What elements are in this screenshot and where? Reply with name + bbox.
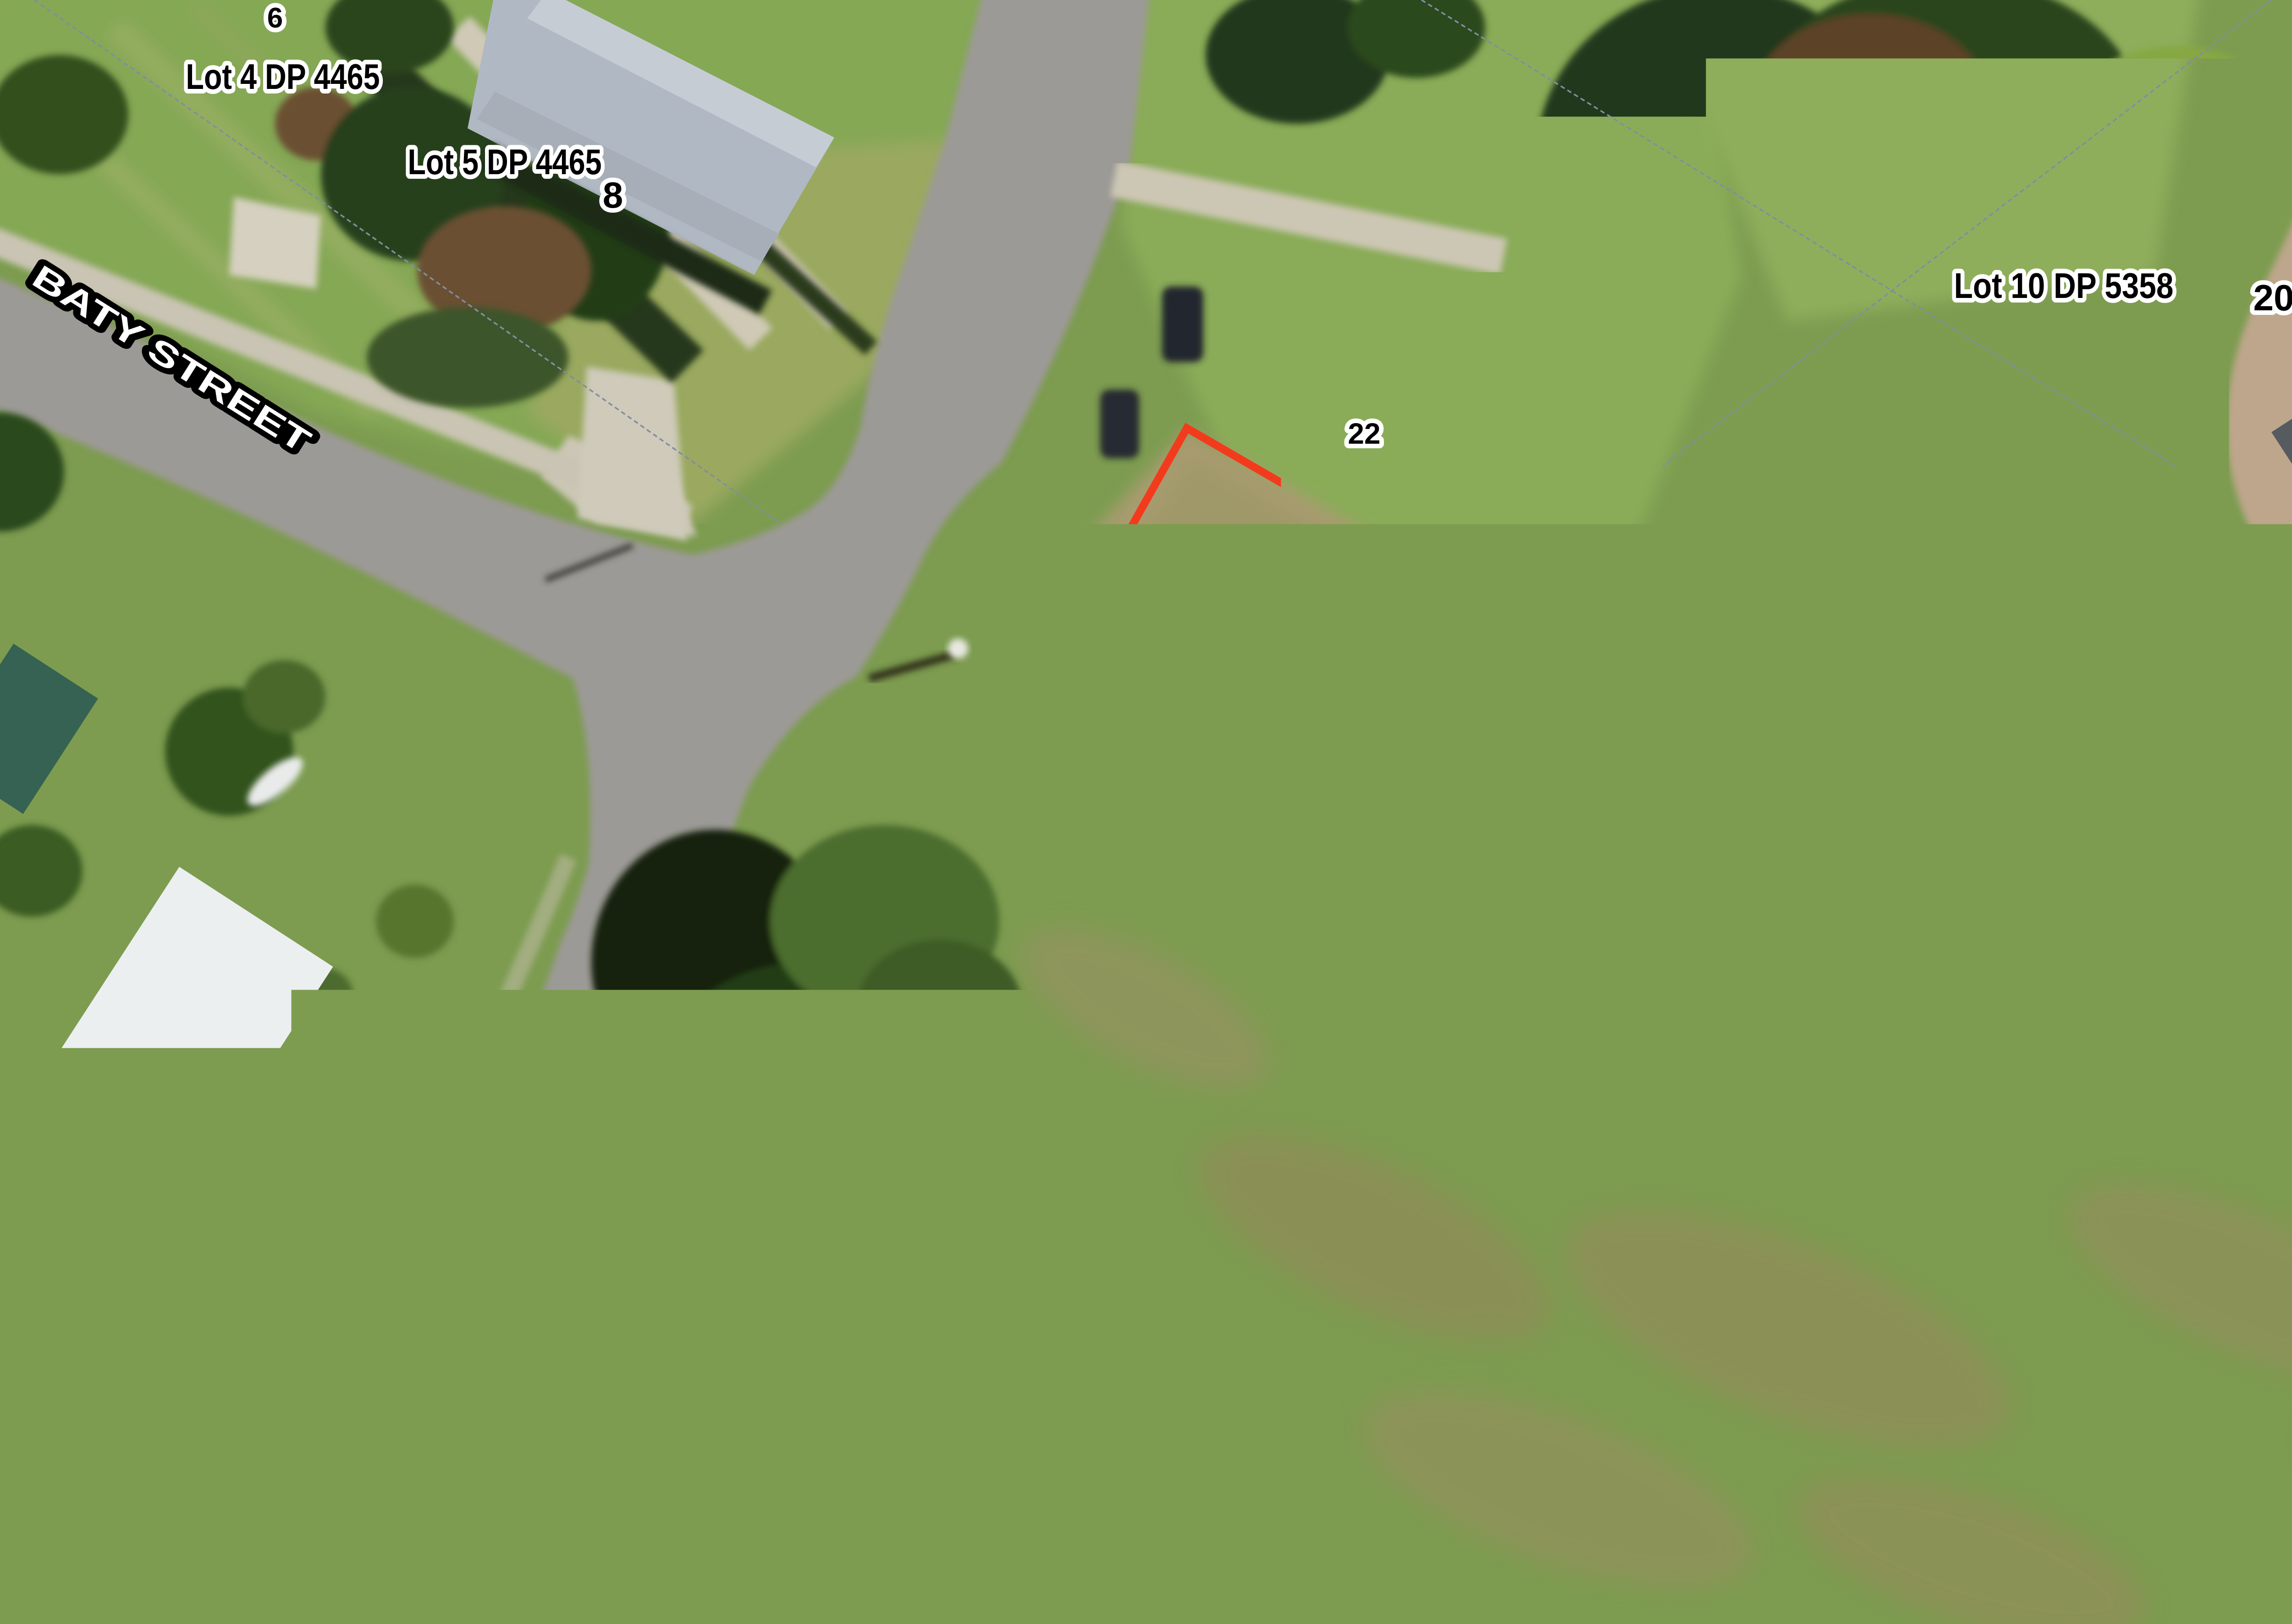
svg-text:Lot 10 DP 5358: Lot 10 DP 5358: [1954, 266, 2174, 306]
svg-text:20: 20: [2253, 277, 2292, 318]
svg-text:Lot 11 DP 5358: Lot 11 DP 5358: [1769, 548, 1982, 588]
svg-text:8: 8: [603, 175, 623, 215]
svg-text:P 3898: P 3898: [4, 1217, 100, 1257]
svg-text:Lot 5 DP 4465: Lot 5 DP 4465: [408, 142, 601, 182]
svg-text:Lot 4 DP 4465: Lot 4 DP 4465: [186, 57, 380, 97]
svg-text:6: 6: [267, 2, 283, 34]
svg-text:22: 22: [1348, 417, 1380, 450]
svg-text:Part Kaiti 326 Block: Part Kaiti 326 Block: [1004, 1211, 1298, 1251]
svg-text:25: 25: [194, 978, 248, 1032]
svg-text:Lot 12 DP 5358: Lot 12 DP 5358: [1497, 944, 1713, 984]
svg-text:24: 24: [1171, 679, 1222, 731]
